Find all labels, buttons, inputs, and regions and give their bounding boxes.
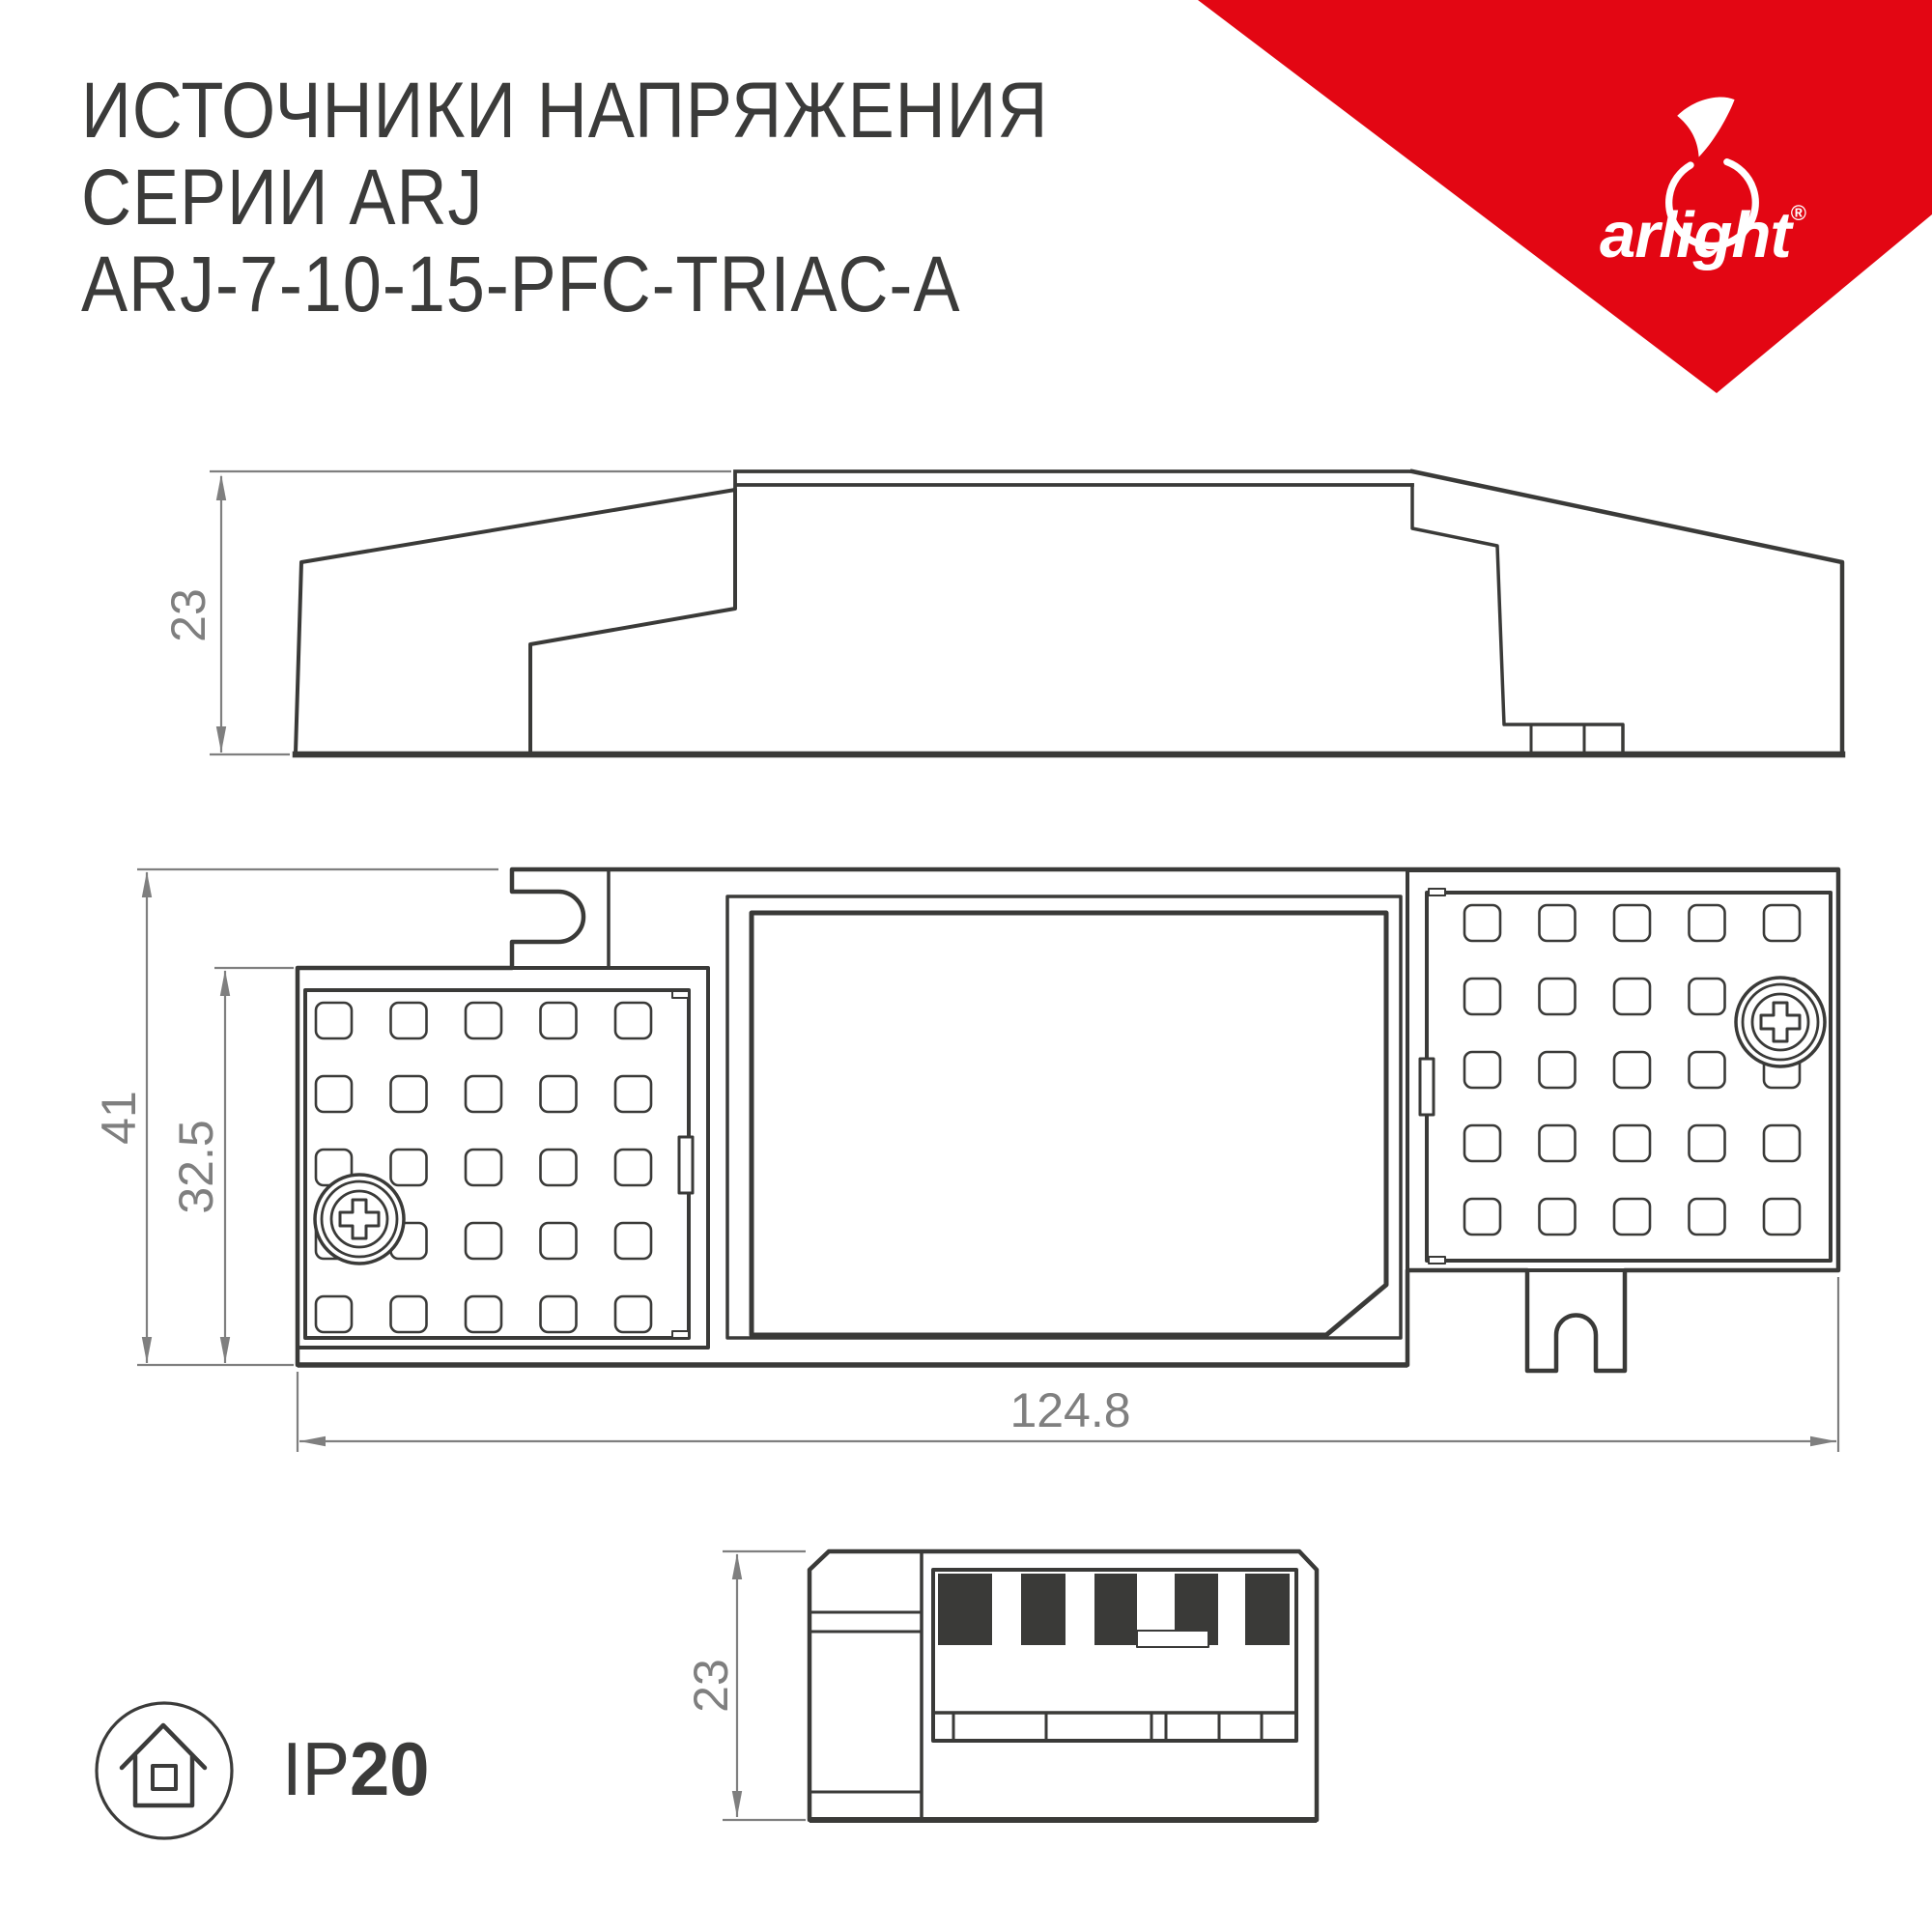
top-view-drawing [298, 869, 1838, 1371]
dimension-label-end-height: 23 [684, 1659, 738, 1713]
left-vent-grid [314, 1001, 653, 1334]
dimension-label-side-height: 23 [161, 588, 215, 642]
cover-tick [1429, 889, 1445, 895]
left-vent-block [298, 968, 708, 1348]
cover-latch [1420, 1059, 1434, 1115]
terminal-notch [1137, 1631, 1208, 1647]
brand-logo-text: arlight [1600, 199, 1791, 271]
dimension-arrow [142, 1337, 152, 1363]
cover-latch [679, 1137, 693, 1193]
cover-tick [672, 1331, 689, 1338]
top-view-center-window [752, 913, 1386, 1335]
house-icon [122, 1725, 205, 1805]
ip-rating-prefix: IP [282, 1726, 350, 1811]
dimension-arrow [299, 1436, 326, 1446]
title-line-1: ИСТОЧНИКИ НАПРЯЖЕНИЯ [81, 68, 1048, 155]
dimension-arrow [216, 726, 226, 753]
ip-badge-icon [97, 1703, 232, 1838]
ip-rating: IP20 [282, 1735, 429, 1803]
end-view-drawing [810, 1551, 1317, 1820]
cover-tick [672, 991, 689, 998]
side-view-inner-step [1412, 485, 1623, 753]
dimension-arrow [732, 1553, 742, 1579]
screw-icon [1736, 978, 1825, 1066]
dimension-arrow [142, 871, 152, 897]
side-view-top-plate [735, 471, 1412, 490]
title-line-2: СЕРИИ ARJ [81, 155, 1048, 241]
dimension-arrow [1810, 1436, 1836, 1446]
side-view-wedge [296, 490, 735, 753]
datasheet-page: 23 41 32.5 124.8 23 ИСТОЧНИКИ НАПРЯЖЕНИЯ… [0, 0, 1932, 1932]
side-view-drawing [296, 471, 1842, 754]
title-line-3: ARJ-7-10-15-PFC-TRIAC-A [81, 241, 1048, 328]
dimension-arrow [216, 474, 226, 500]
page-title: ИСТОЧНИКИ НАПРЯЖЕНИЯ СЕРИИ ARJ ARJ-7-10-… [81, 68, 1048, 328]
dimension-arrow [220, 970, 230, 996]
dimension-arrow [220, 1337, 230, 1363]
brand-logo: arlight® [1539, 182, 1867, 268]
screw-icon [315, 1175, 404, 1264]
dimension-label-length: 124.8 [1009, 1383, 1130, 1437]
ip-rating-value: 20 [350, 1726, 429, 1811]
dimension-arrow [732, 1791, 742, 1817]
registered-trademark: ® [1791, 201, 1806, 225]
cover-tick [1429, 1257, 1445, 1264]
right-vent-grid [1463, 903, 1802, 1236]
dimension-side-height [210, 471, 731, 754]
dimension-label-top-height: 41 [92, 1091, 146, 1145]
right-vent-block [1407, 870, 1838, 1270]
side-view-connector-cells [1531, 724, 1584, 753]
side-view-slope-outline [1412, 471, 1842, 753]
dimension-top-inner-height [214, 968, 294, 1363]
dimension-label-top-inner-height: 32.5 [169, 1120, 223, 1213]
